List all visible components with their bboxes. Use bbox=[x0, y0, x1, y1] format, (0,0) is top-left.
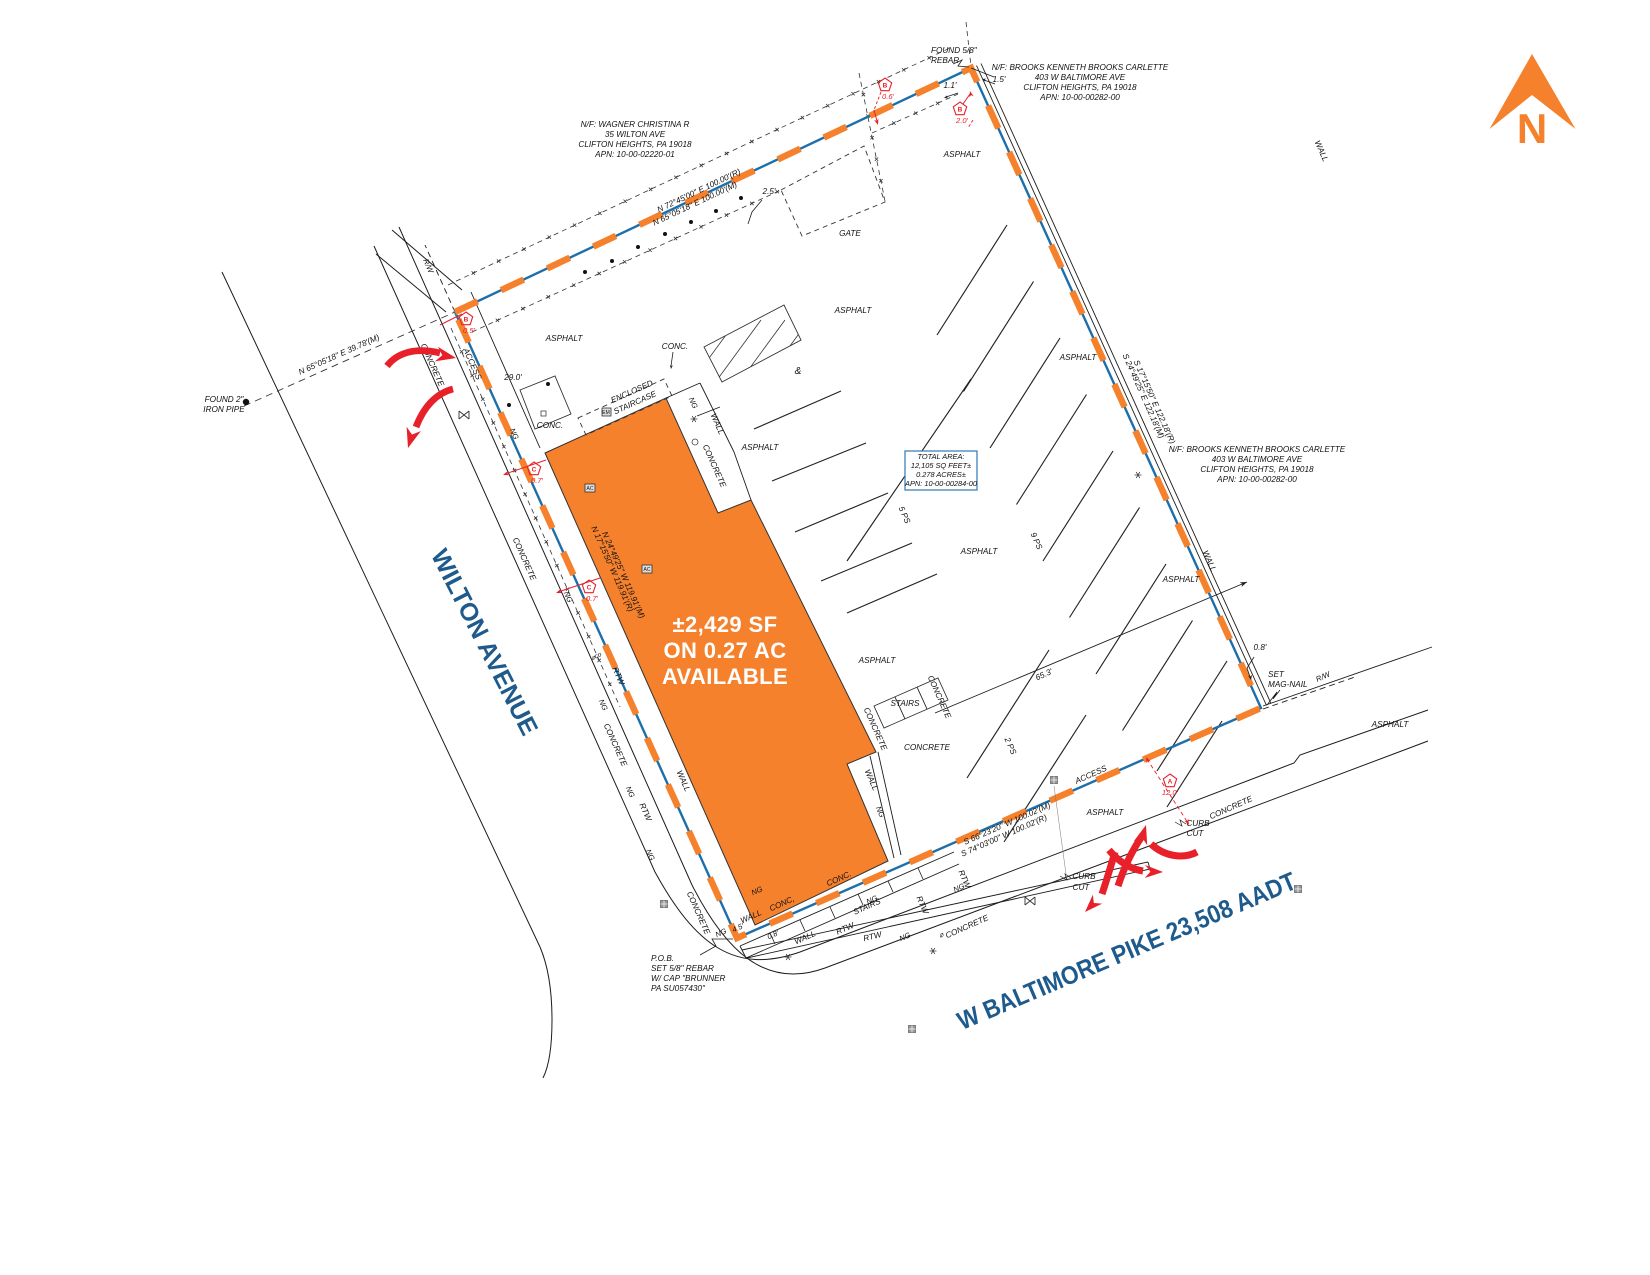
svg-text:REBAR: REBAR bbox=[931, 56, 959, 65]
svg-text:±2,429 SF: ±2,429 SF bbox=[673, 612, 778, 637]
svg-text:N/F: BROOKS KENNETH BROOKS CAR: N/F: BROOKS KENNETH BROOKS CARLETTE bbox=[1169, 445, 1346, 454]
svg-text:29.0': 29.0' bbox=[503, 373, 522, 382]
svg-text:ASPHALT: ASPHALT bbox=[858, 656, 897, 665]
svg-text:1.1': 1.1' bbox=[944, 81, 957, 90]
svg-text:C: C bbox=[587, 585, 592, 592]
svg-text:0.278 ACRES±: 0.278 ACRES± bbox=[916, 470, 966, 479]
svg-text:403 W BALTIMORE AVE: 403 W BALTIMORE AVE bbox=[1035, 73, 1126, 82]
svg-text:N: N bbox=[1517, 105, 1547, 152]
svg-text:AVAILABLE: AVAILABLE bbox=[662, 664, 788, 689]
svg-text:ASPHALT: ASPHALT bbox=[943, 150, 982, 159]
svg-text:C: C bbox=[532, 467, 537, 474]
svg-text:2.5': 2.5' bbox=[762, 187, 776, 196]
svg-text:P.O.B.: P.O.B. bbox=[651, 954, 674, 963]
svg-text:CLIFTON HEIGHTS, PA 19018: CLIFTON HEIGHTS, PA 19018 bbox=[1200, 465, 1314, 474]
svg-text:ASPHALT: ASPHALT bbox=[1162, 575, 1201, 584]
svg-text:ASPHALT: ASPHALT bbox=[1059, 353, 1098, 362]
svg-text:0.7': 0.7' bbox=[586, 594, 599, 603]
svg-text:ASPHALT: ASPHALT bbox=[960, 547, 999, 556]
svg-text:ON 0.27 AC: ON 0.27 AC bbox=[663, 638, 786, 663]
svg-text:ASPHALT: ASPHALT bbox=[1371, 720, 1410, 729]
svg-text:EM: EM bbox=[602, 410, 610, 416]
svg-text:ASPHALT: ASPHALT bbox=[741, 443, 780, 452]
svg-text:0.5': 0.5' bbox=[463, 326, 476, 335]
svg-text:B: B bbox=[958, 107, 963, 114]
svg-text:IRON PIPE: IRON PIPE bbox=[203, 405, 245, 414]
svg-text:CONC.: CONC. bbox=[662, 342, 688, 351]
svg-text:&: & bbox=[795, 366, 802, 377]
svg-text:0.6': 0.6' bbox=[882, 92, 895, 101]
svg-text:12,105 SQ FEET±: 12,105 SQ FEET± bbox=[911, 461, 971, 470]
svg-text:2.0': 2.0' bbox=[955, 116, 969, 125]
svg-text:FOUND 2": FOUND 2" bbox=[205, 395, 245, 404]
svg-text:SET 5/8" REBAR: SET 5/8" REBAR bbox=[651, 964, 714, 973]
svg-text:0.8': 0.8' bbox=[1254, 643, 1267, 652]
svg-text:35 WILTON AVE: 35 WILTON AVE bbox=[605, 130, 666, 139]
svg-text:CLIFTON HEIGHTS, PA 19018: CLIFTON HEIGHTS, PA 19018 bbox=[1023, 83, 1137, 92]
svg-text:SET: SET bbox=[1268, 670, 1285, 679]
svg-text:B: B bbox=[883, 83, 888, 90]
svg-text:TOTAL AREA:: TOTAL AREA: bbox=[918, 452, 965, 461]
svg-text:W/ CAP "BRUNNER: W/ CAP "BRUNNER bbox=[651, 974, 726, 983]
svg-text:CONC.: CONC. bbox=[537, 421, 563, 430]
svg-text:APN: 10-00-00282-00: APN: 10-00-00282-00 bbox=[1216, 475, 1297, 484]
svg-text:CUT: CUT bbox=[1187, 829, 1205, 838]
svg-text:N/F: BROOKS KENNETH BROOKS CAR: N/F: BROOKS KENNETH BROOKS CARLETTE bbox=[992, 63, 1169, 72]
svg-text:GATE: GATE bbox=[839, 229, 861, 238]
svg-text:A: A bbox=[1168, 779, 1173, 786]
svg-text:ASPHALT: ASPHALT bbox=[545, 334, 584, 343]
svg-text:MAG-NAIL: MAG-NAIL bbox=[1268, 680, 1308, 689]
svg-text:APN: 10-00-02220-01: APN: 10-00-02220-01 bbox=[594, 150, 675, 159]
svg-text:AC: AC bbox=[587, 486, 594, 492]
svg-text:CUT: CUT bbox=[1073, 883, 1091, 892]
svg-text:0.7': 0.7' bbox=[531, 476, 544, 485]
svg-text:CURB: CURB bbox=[1072, 872, 1096, 881]
svg-text:B: B bbox=[464, 317, 469, 324]
svg-text:CONCRETE: CONCRETE bbox=[904, 743, 950, 752]
svg-text:AC: AC bbox=[644, 567, 651, 573]
svg-text:APN: 10-00-00284-00: APN: 10-00-00284-00 bbox=[904, 479, 978, 488]
svg-text:1.5': 1.5' bbox=[993, 75, 1006, 84]
svg-text:APN: 10-00-00282-00: APN: 10-00-00282-00 bbox=[1039, 93, 1120, 102]
svg-text:ASPHALT: ASPHALT bbox=[1086, 808, 1125, 817]
svg-text:FOUND 5/8": FOUND 5/8" bbox=[931, 46, 978, 55]
svg-text:403 W BALTIMORE AVE: 403 W BALTIMORE AVE bbox=[1212, 455, 1303, 464]
svg-text:CLIFTON HEIGHTS, PA 19018: CLIFTON HEIGHTS, PA 19018 bbox=[578, 140, 692, 149]
svg-text:CURB: CURB bbox=[1186, 819, 1210, 828]
svg-text:PA SU057430": PA SU057430" bbox=[651, 984, 706, 993]
svg-text:N/F: WAGNER CHRISTINA R: N/F: WAGNER CHRISTINA R bbox=[581, 120, 690, 129]
svg-text:STAIRS: STAIRS bbox=[891, 699, 921, 708]
svg-text:ASPHALT: ASPHALT bbox=[834, 306, 873, 315]
